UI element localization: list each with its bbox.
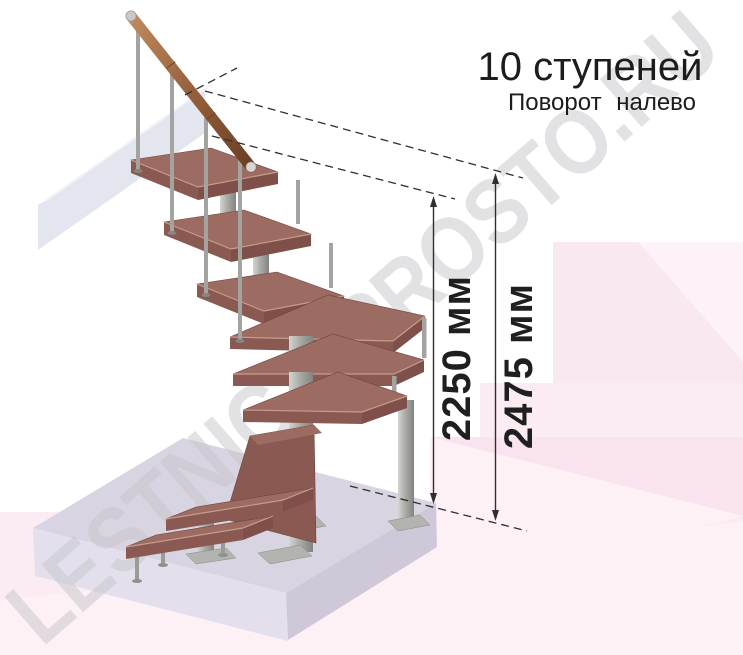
dimension-label-2250: 2250 мм xyxy=(435,275,479,441)
baluster xyxy=(204,118,208,294)
staircase-diagram: LESTNICA-PROSTO.RU xyxy=(0,0,743,655)
tread-step-9 xyxy=(164,210,311,262)
baluster xyxy=(238,160,242,340)
staircase-diagram-svg: LESTNICA-PROSTO.RU xyxy=(0,0,743,655)
page-subtitle: Поворот налево xyxy=(508,89,696,116)
page-title: 10 ступеней xyxy=(478,45,703,89)
support-rod xyxy=(296,180,300,224)
handrail-end-cap xyxy=(126,11,136,21)
handrail-end-cap xyxy=(246,162,256,172)
support-column xyxy=(398,400,414,526)
baluster xyxy=(170,74,174,232)
support-rod xyxy=(422,318,427,358)
support-rod xyxy=(329,243,333,288)
baluster xyxy=(136,30,140,170)
dimension-label-2475: 2475 мм xyxy=(497,283,541,449)
